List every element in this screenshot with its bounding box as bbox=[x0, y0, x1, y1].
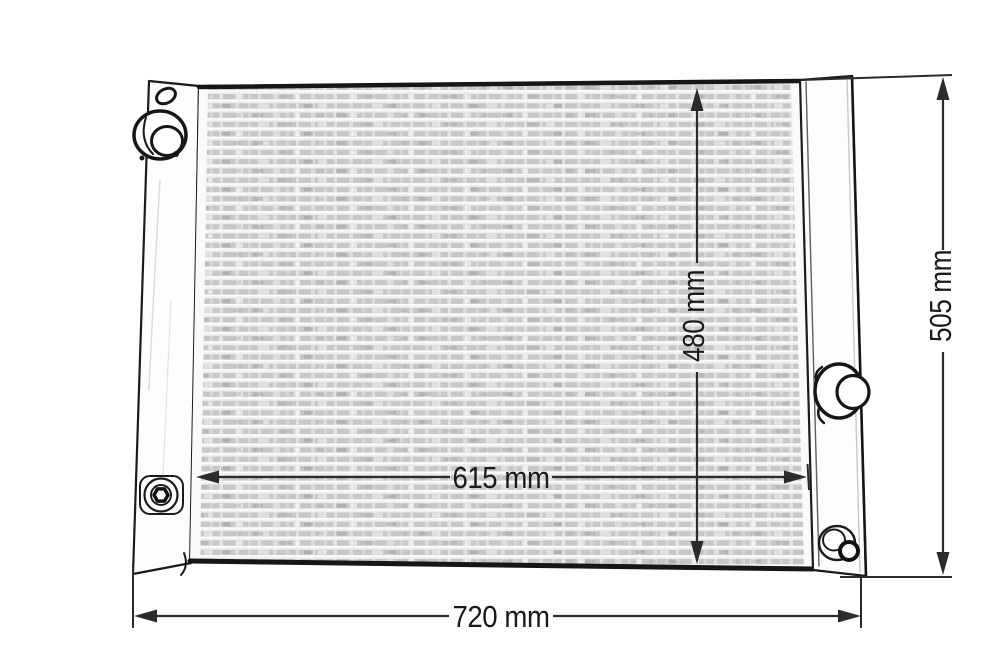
drain-plug bbox=[140, 476, 183, 514]
overall-height-label: 505 mm bbox=[923, 250, 958, 342]
core-width-label: 615 mm bbox=[453, 460, 550, 495]
radiator-illustration bbox=[133, 76, 869, 576]
radiator-core-texture-dark bbox=[190, 80, 813, 570]
core-height-label: 480 mm bbox=[676, 270, 711, 362]
radiator-drawing-canvas: 480 mm 505 mm 615 mm bbox=[0, 0, 1000, 666]
dimension-overall-width: 720 mm bbox=[133, 563, 861, 634]
inlet-port bbox=[134, 111, 186, 161]
arrow-down-icon bbox=[937, 552, 950, 575]
overall-width-label: 720 mm bbox=[453, 599, 550, 634]
radiator-dimensional-diagram: 480 mm 505 mm 615 mm bbox=[0, 0, 1000, 666]
arrow-up-icon bbox=[937, 77, 950, 100]
arrow-left-icon bbox=[134, 610, 157, 623]
arrow-right-icon bbox=[838, 610, 861, 623]
